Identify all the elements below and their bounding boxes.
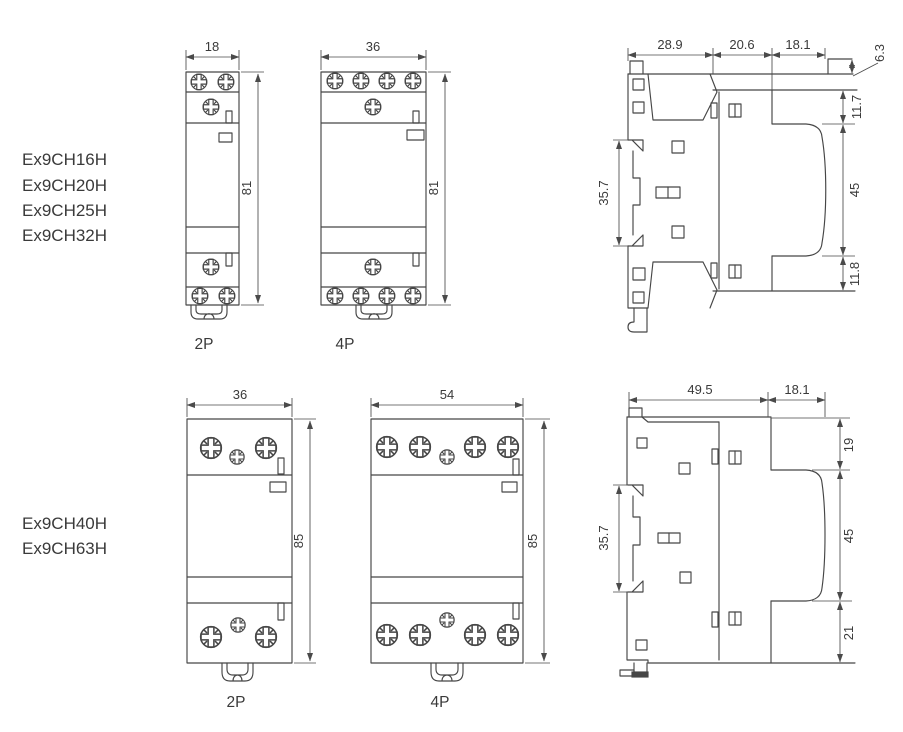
model-list-bottom: Ex9CH40H Ex9CH63H — [22, 514, 107, 558]
dim-step-bottom: 11.8 — [847, 262, 862, 286]
dim-step-top: 11.7 — [849, 95, 864, 119]
dim-din-rail: 35.7 — [596, 180, 611, 205]
bottom-side-view: 49.5 18.1 19 45 21 35.7 — [596, 382, 856, 677]
din-clip — [431, 663, 463, 681]
dim-height: 85 — [291, 534, 306, 548]
dim-step-bottom: 21 — [841, 626, 856, 640]
dim-depth-back: 49.5 — [687, 382, 712, 397]
din-clip — [191, 305, 227, 319]
dim-height: 81 — [239, 181, 254, 195]
actuator-tab — [278, 458, 284, 474]
actuator-tab — [226, 111, 232, 123]
top-4p-front-view: 36 81 4P — [321, 39, 451, 353]
dim-height: 85 — [525, 534, 540, 548]
actuator-tab — [226, 253, 232, 266]
indicator-window — [502, 482, 517, 492]
pole-label: 4P — [336, 336, 355, 353]
bottom-4p-front-view: 54 85 4P — [371, 387, 550, 711]
indicator-window — [407, 130, 424, 140]
indicator-window — [270, 482, 286, 492]
top-2p-front-view: 18 81 2P — [186, 39, 264, 353]
dim-depth-front: 18.1 — [785, 37, 810, 52]
dim-depth-front: 18.1 — [784, 382, 809, 397]
pole-label: 2P — [227, 694, 246, 711]
model-label: Ex9CH25H — [22, 201, 107, 220]
dim-depth-mid: 20.6 — [729, 37, 754, 52]
model-label: Ex9CH16H — [22, 150, 107, 169]
dim-depth-back: 28.9 — [657, 37, 682, 52]
dim-lip: 6.3 — [872, 44, 887, 62]
pole-label: 2P — [195, 336, 214, 353]
contactor-dimension-drawing: Ex9CH16H Ex9CH20H Ex9CH25H Ex9CH32H Ex9C… — [0, 0, 903, 732]
din-clip — [222, 663, 253, 681]
terminal-screws — [201, 438, 277, 648]
terminal-screws — [377, 437, 519, 646]
model-label: Ex9CH40H — [22, 514, 107, 533]
dim-width: 54 — [440, 387, 454, 402]
actuator-tab — [513, 459, 519, 475]
top-side-view: 28.9 20.6 18.1 6.3 11.7 45 11.8 35.7 — [596, 37, 887, 332]
dim-face: 45 — [847, 183, 862, 197]
din-clip — [356, 305, 392, 319]
model-label: Ex9CH63H — [22, 539, 107, 558]
actuator-tab — [413, 253, 419, 266]
dim-width: 18 — [205, 39, 219, 54]
dimension-drawing-page: Ex9CH16H Ex9CH20H Ex9CH25H Ex9CH32H Ex9C… — [0, 0, 903, 732]
bottom-2p-front-view: 36 85 2P — [187, 387, 316, 711]
pole-label: 4P — [431, 694, 450, 711]
actuator-tab — [513, 603, 519, 619]
actuator-tab — [278, 603, 284, 620]
dim-height: 81 — [426, 181, 441, 195]
indicator-window — [219, 133, 232, 142]
din-clip-tab — [628, 308, 647, 332]
dim-width: 36 — [233, 387, 247, 402]
dim-face: 45 — [841, 529, 856, 543]
model-label: Ex9CH32H — [22, 226, 107, 245]
terminal-screws — [327, 73, 421, 304]
model-label: Ex9CH20H — [22, 176, 107, 195]
dim-din-rail: 35.7 — [596, 525, 611, 550]
dim-width: 36 — [366, 39, 380, 54]
actuator-tab — [413, 111, 419, 123]
terminal-screws — [191, 74, 235, 304]
model-list-top: Ex9CH16H Ex9CH20H Ex9CH25H Ex9CH32H — [22, 150, 107, 245]
dim-step-top: 19 — [841, 438, 856, 452]
